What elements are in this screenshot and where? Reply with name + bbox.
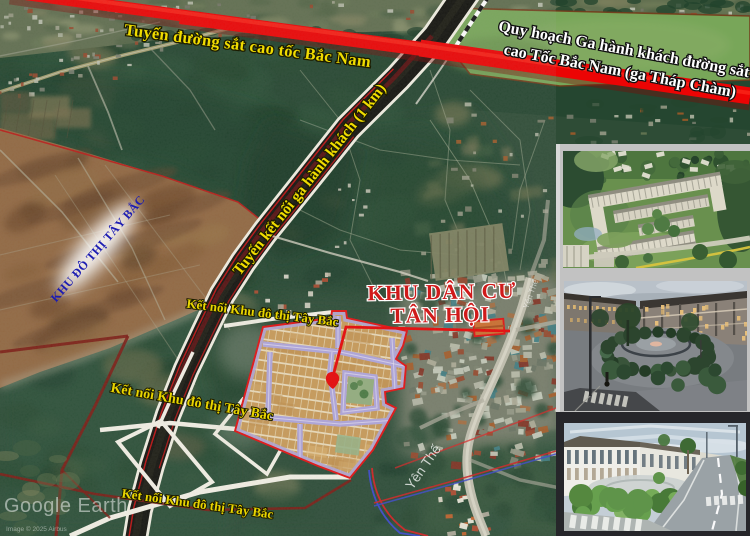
svg-text:Google Earth: Google Earth (4, 495, 128, 517)
svg-text:Image © 2025 Airbus: Image © 2025 Airbus (6, 525, 68, 533)
svg-text:TÂN HỘI: TÂN HỘI (390, 302, 490, 328)
svg-text:KHU DÂN CƯ: KHU DÂN CƯ (367, 279, 516, 306)
